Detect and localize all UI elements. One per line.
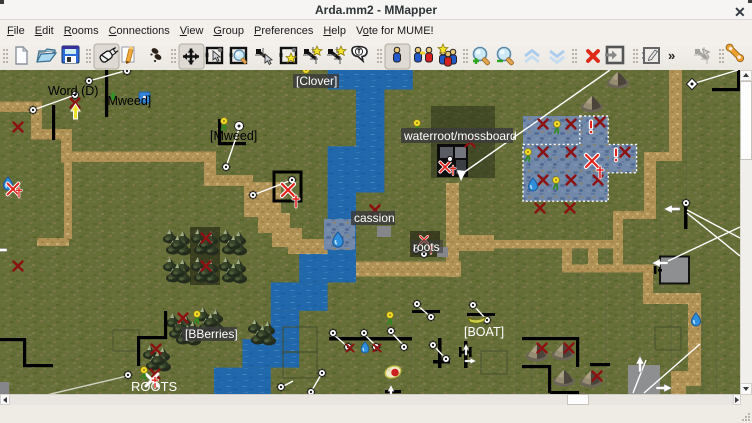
svg-text:ROOTS: ROOTS <box>131 379 178 394</box>
svg-text:[Mweed]: [Mweed] <box>210 129 257 143</box>
svg-text:[BBerries]: [BBerries] <box>185 327 238 341</box>
svg-text:[Clover]: [Clover] <box>296 74 337 88</box>
svg-text:cassion: cassion <box>354 211 395 225</box>
svg-text:roots: roots <box>413 240 440 254</box>
svg-text:Word (D): Word (D) <box>48 84 98 98</box>
svg-text:[BOAT]: [BOAT] <box>464 325 504 339</box>
svg-text:waterroot/mossboard: waterroot/mossboard <box>403 129 517 143</box>
svg-text:»: » <box>668 48 675 63</box>
svg-text:[Mweed]: [Mweed] <box>104 94 151 108</box>
